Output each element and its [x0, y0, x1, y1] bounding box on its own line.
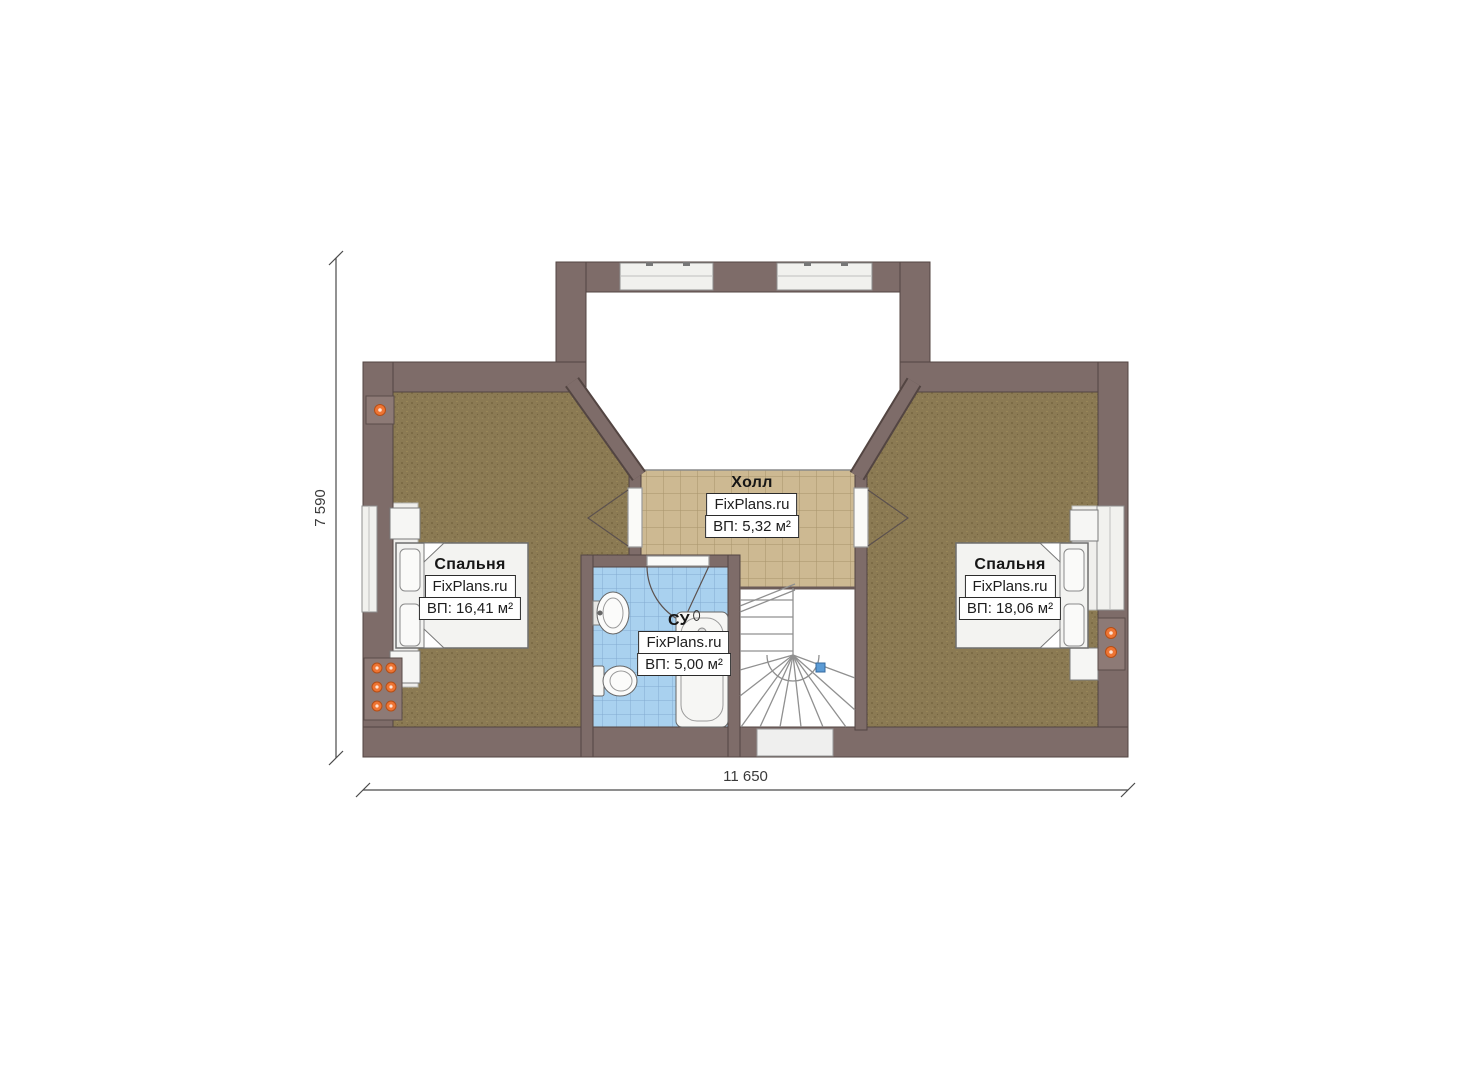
bathroom-left-wall: [581, 555, 593, 757]
room-area: ВП: 5,00 м²: [637, 653, 731, 676]
floor-plan-page: Спальня FixPlans.ru ВП: 16,41 м² Холл Fi…: [0, 0, 1474, 1080]
brand-watermark: FixPlans.ru: [964, 575, 1055, 598]
top-wall-right-wing: [900, 362, 1128, 392]
stair-marker: [816, 663, 825, 672]
brand-watermark: FixPlans.ru: [638, 631, 729, 654]
brand-watermark: FixPlans.ru: [424, 575, 515, 598]
room-area: ВП: 16,41 м²: [419, 597, 521, 620]
dimension-height: 7 590: [312, 478, 332, 538]
room-label-hall: Холл FixPlans.ru ВП: 5,32 м²: [705, 474, 799, 538]
bottom-exterior-wall: [363, 727, 1128, 757]
brand-watermark: FixPlans.ru: [706, 493, 797, 516]
left-wall-window: [362, 506, 377, 612]
top-wall-left-wing: [363, 362, 586, 392]
outlet-niche-right: [1098, 618, 1125, 670]
room-area: ВП: 18,06 м²: [959, 597, 1061, 620]
room-label-bedroom-left: Спальня FixPlans.ru ВП: 16,41 м²: [419, 556, 521, 620]
room-name: СУ: [668, 610, 700, 630]
room-area: ВП: 5,32 м²: [705, 515, 799, 538]
nightstand: [390, 508, 420, 539]
room-label-bathroom: СУ FixPlans.ru ВП: 5,00 м²: [637, 610, 731, 676]
stairwell-floor: [740, 588, 855, 727]
room-name: Спальня: [434, 556, 505, 574]
outlet-niche-bottom-left: [364, 658, 402, 720]
floor-plan-svg: [0, 0, 1474, 1080]
nightstand: [1070, 648, 1098, 680]
bay-top-wall: [556, 262, 930, 292]
nightstand: [1070, 510, 1098, 541]
vent-niche-top-left: [366, 396, 394, 424]
bay-window-right: [777, 262, 872, 290]
bottom-wall-window: [757, 729, 833, 756]
room-name: Спальня: [974, 556, 1045, 574]
toilet: [593, 666, 637, 696]
vent-icon: [693, 610, 700, 621]
bay-window-left: [620, 262, 713, 290]
room-label-bedroom-right: Спальня FixPlans.ru ВП: 18,06 м²: [959, 556, 1061, 620]
right-wall-window: [1097, 506, 1124, 610]
dimension-width: 11 650: [363, 768, 1128, 785]
room-name: Холл: [731, 474, 772, 492]
